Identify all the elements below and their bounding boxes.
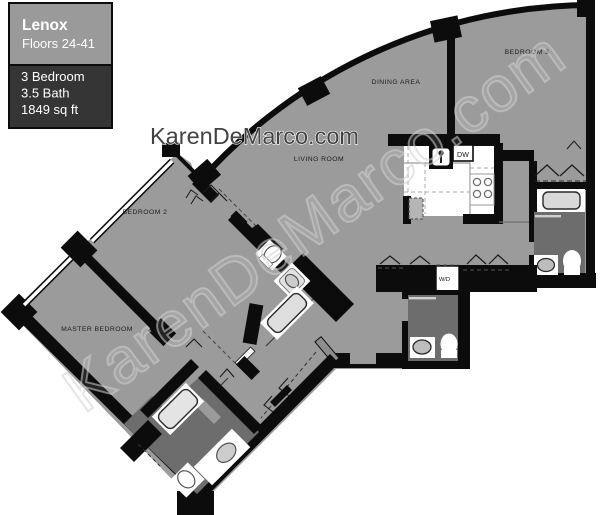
svg-text:3.5 Bath: 3.5 Bath xyxy=(21,86,69,101)
svg-text:KarenDeMarco.com: KarenDeMarco.com xyxy=(150,123,359,149)
svg-text:DINING AREA: DINING AREA xyxy=(372,79,421,86)
svg-text:3 Bedroom: 3 Bedroom xyxy=(21,69,85,84)
svg-text:BEDROOM 2: BEDROOM 2 xyxy=(123,209,168,216)
svg-text:W/D: W/D xyxy=(439,277,450,283)
svg-text:1849 sq ft: 1849 sq ft xyxy=(21,102,78,117)
svg-text:Lenox: Lenox xyxy=(22,17,68,34)
svg-text:Floors 24-41: Floors 24-41 xyxy=(22,36,95,51)
